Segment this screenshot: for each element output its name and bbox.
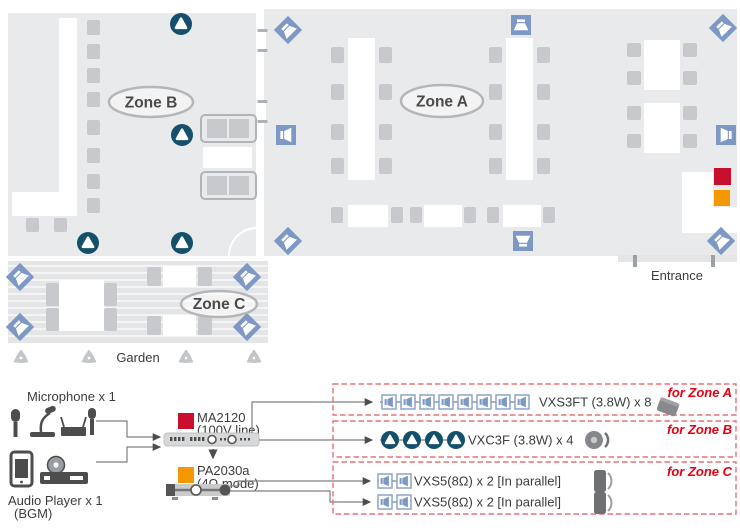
vxs5-product-image (594, 470, 611, 492)
vxs5-speaker-icon (378, 495, 392, 509)
vxs5-speaker-icon (397, 474, 411, 488)
vxs5-product-image (594, 492, 611, 514)
vxc3f-speaker-icon (381, 431, 399, 449)
vxs3ft-label: VXS3FT (3.8W) x 8 (539, 395, 651, 410)
zone-a-room: Zone A (258, 9, 740, 256)
vxc3f-label: VXC3F (3.8W) x 4 (468, 433, 573, 448)
entrance-post (711, 255, 715, 267)
coffee-table (203, 147, 252, 168)
zone-b-room: Zone B (8, 13, 257, 256)
zone-a-chain-box: VXS3FT (3.8W) x 8 for Zone A (333, 384, 736, 417)
tree-icon (177, 351, 194, 366)
vxs3ft-speaker-icon (382, 395, 396, 409)
pa2030a-location-marker (714, 190, 730, 206)
for-zone-a-label: for Zone A (667, 385, 732, 400)
vxs5-speaker-icon (378, 474, 392, 488)
vxs5-label-row1: VXS5(8Ω) x 2 [In parallel] (414, 474, 561, 489)
zone-b-chain-box: VXC3F (3.8W) x 4 for Zone B (333, 421, 736, 457)
wall-speaker-icon (716, 125, 736, 145)
zone-c-chain-box: VXS5(8Ω) x 2 [In parallel] VXS5(8Ω) x 2 … (333, 462, 736, 514)
player-wire (96, 447, 160, 462)
vxc3f-speaker-icon (447, 431, 465, 449)
tree-icon (80, 351, 97, 366)
cd-player-icon (40, 457, 88, 485)
ma2120-location-marker (714, 168, 731, 185)
vxs3ft-speaker-icon (496, 395, 510, 409)
entrance-label: Entrance (651, 268, 703, 283)
wall-speaker-icon (513, 231, 533, 251)
for-zone-c-label: for Zone C (667, 464, 733, 479)
audio-player-sublabel: (BGM) (14, 506, 52, 521)
system-diagram: Microphone x 1 (8, 384, 736, 521)
tree-icon (12, 351, 29, 366)
zone-b-label: Zone B (125, 95, 178, 112)
wireless-mic-icon (61, 408, 96, 436)
vxs3ft-product-image (656, 397, 680, 417)
ma2120-front-panel (164, 433, 259, 446)
long-table (506, 38, 533, 180)
zone-c-label: Zone C (193, 296, 246, 313)
vxc3f-product-image (585, 431, 608, 449)
vxs3ft-speaker-icon (401, 395, 415, 409)
speaker-layout-diagram: Zone B (0, 0, 740, 530)
mic-wire (96, 421, 160, 437)
for-zone-b-label: for Zone B (667, 422, 732, 437)
garden-label: Garden (116, 350, 159, 365)
vxs3ft-speaker-icon (439, 395, 453, 409)
smartphone-icon (11, 452, 32, 486)
tree-icon (245, 351, 262, 366)
vxs3ft-speaker-icon (420, 395, 434, 409)
wire-to-zone-a (252, 402, 372, 433)
handheld-mic-icon (11, 409, 20, 437)
audio-player-icons (11, 452, 88, 486)
entrance-post (633, 255, 637, 267)
microphone-label: Microphone x 1 (27, 389, 116, 404)
pa2030a-front-panel (166, 484, 231, 500)
zone-c-terrace: Zone C (6, 261, 268, 343)
vxs3ft-speaker-icon (458, 395, 472, 409)
ceiling-speaker-icon (171, 232, 193, 254)
microphone-icons (11, 405, 96, 437)
zone-a-label: Zone A (416, 94, 468, 111)
wire-to-zone-c-2 (230, 491, 370, 502)
gooseneck-mic-icon (30, 405, 57, 437)
pa2030a-marker (178, 467, 194, 483)
vxs3ft-speaker-icon (515, 395, 529, 409)
vxc3f-speaker-icon (403, 431, 421, 449)
wall-speaker-icon (511, 15, 531, 35)
entrance-area: Entrance (618, 255, 737, 283)
diagram-canvas: Zone B (0, 0, 740, 530)
floor-plan: Zone B (6, 9, 740, 366)
vxs3ft-speaker-icon (477, 395, 491, 409)
ceiling-speaker-icon (171, 124, 193, 146)
vxs5-label-row2: VXS5(8Ω) x 2 [In parallel] (414, 495, 561, 510)
sofa-set (201, 115, 256, 199)
wall-speaker-icon (276, 125, 296, 145)
ceiling-speaker-icon (77, 232, 99, 254)
long-table (348, 38, 375, 180)
ma2120-marker (178, 413, 194, 429)
ma2120-amplifier: MA2120 (100V line) (164, 410, 260, 446)
bottom-tables (331, 205, 555, 227)
ceiling-speaker-icon (170, 13, 192, 35)
vxc3f-speaker-icon (425, 431, 443, 449)
garden-area: Garden (12, 350, 262, 366)
vxs5-speaker-icon (397, 495, 411, 509)
